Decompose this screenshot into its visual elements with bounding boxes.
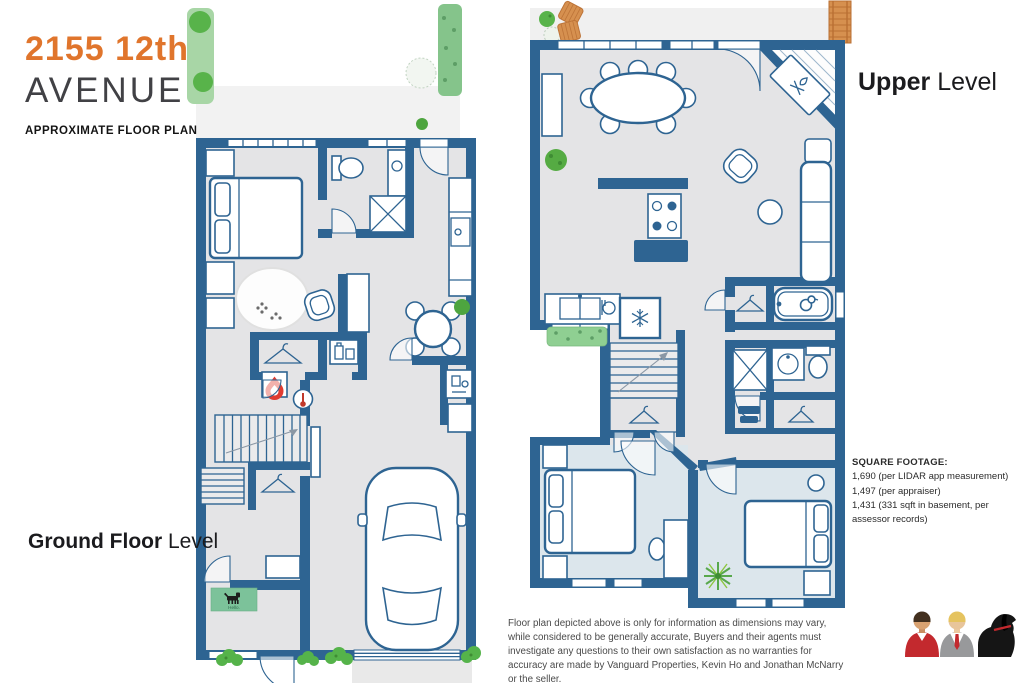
laundry-icon [330, 340, 358, 364]
driveway [352, 660, 472, 683]
dining-table [591, 73, 685, 123]
desk [664, 520, 688, 578]
plant-icon [454, 299, 470, 315]
hedge-right [438, 4, 462, 96]
side-table [758, 200, 782, 224]
sketch-tree [406, 58, 436, 88]
garage-shelf [448, 404, 472, 432]
cabinet [347, 274, 369, 332]
sofa [801, 139, 831, 282]
doormat-text: Hello. [228, 605, 240, 610]
address-line2: AVENUE [25, 71, 197, 111]
bush-icon [416, 118, 428, 130]
nightstand [206, 262, 234, 294]
square-footage: SQUARE FOOTAGE: 1,690 (per LIDAR app mea… [852, 456, 1022, 527]
dog-mat-icon: Hello. [211, 588, 257, 611]
upper-level-label-light: Level [937, 68, 997, 96]
agent-red-shirt-icon [905, 612, 939, 658]
shower [370, 196, 406, 232]
agent-avatars [905, 612, 1016, 658]
disclaimer-text: Floor plan depicted above is only for in… [508, 617, 846, 683]
desk-chair [649, 538, 665, 560]
refrigerator [620, 298, 660, 338]
square-footage-heading: SQUARE FOOTAGE: [852, 456, 1022, 470]
nightstand [543, 556, 567, 579]
square-footage-line: 1,431 (331 sqft in basement, per assesso… [852, 499, 1022, 528]
deck-cushion-icon [557, 20, 581, 43]
branding: 2155 12th AVENUE APPROXIMATE FLOOR PLAN [25, 30, 197, 137]
upper-level-label-strong: Upper [858, 68, 930, 96]
dresser [206, 298, 234, 328]
nightstand [543, 445, 567, 468]
ladder-icon [829, 1, 851, 43]
pet-rug [236, 268, 308, 330]
car-icon [358, 468, 466, 650]
address-line1: 2155 12th [25, 30, 197, 69]
round-table [415, 311, 451, 347]
nightstand [804, 571, 830, 595]
floor-plan-page: Hello. [0, 0, 1024, 683]
utility-icon [446, 370, 472, 398]
square-footage-line: 1,497 (per appraiser) [852, 485, 1022, 499]
bench [266, 556, 300, 578]
floor-plan-subtitle: APPROXIMATE FLOOR PLAN [25, 125, 197, 137]
front-door [260, 656, 294, 683]
ground-floor-label: Ground Floor Level [28, 530, 218, 554]
upper-level-label: Upper Level [858, 68, 997, 97]
agent-gray-suit-icon [940, 612, 974, 658]
bush-icon [539, 11, 555, 27]
nightstand [206, 150, 234, 176]
ground-floor-label-strong: Ground Floor [28, 530, 162, 553]
upper-level-plan [530, 0, 851, 608]
stool [808, 475, 824, 491]
thermostat-icon [294, 390, 313, 409]
plant-icon [545, 149, 567, 171]
shelving [449, 178, 472, 296]
garage-door-leaf [311, 427, 320, 477]
front-patio [196, 86, 460, 140]
black-dog-icon [978, 614, 1016, 657]
kitchen-island [634, 240, 688, 262]
square-footage-line: 1,690 (per LIDAR app measurement) [852, 470, 1022, 484]
ground-floor-label-light: Level [168, 530, 218, 553]
vanity [388, 150, 406, 196]
ground-floor-plan: Hello. [187, 4, 481, 683]
garage-door [354, 650, 460, 660]
window-box-hedge [547, 327, 607, 346]
sideboard [542, 74, 562, 136]
stove [648, 194, 681, 238]
